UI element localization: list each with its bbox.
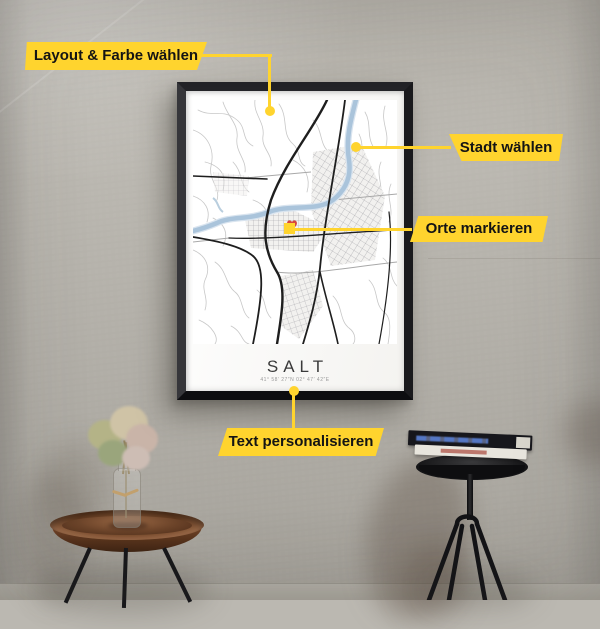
connector-stadt xyxy=(357,146,451,149)
callout-point-icon xyxy=(265,106,275,116)
poster-paper: SALT 41° 58′ 27″N 02° 47′ 42″E xyxy=(186,91,404,391)
stool-legs xyxy=(405,512,535,600)
dried-flowers xyxy=(88,406,158,478)
city-map xyxy=(193,100,397,344)
callout-text-personalisieren[interactable]: Text personalisieren xyxy=(218,428,384,456)
scene: { "callouts": { "layout": { "label": "La… xyxy=(0,0,600,600)
callout-point-icon xyxy=(351,142,361,152)
book-pages xyxy=(516,437,530,449)
wall-seam xyxy=(428,258,600,259)
book-wall-shadow xyxy=(563,400,600,465)
callout-stadt-waehlen[interactable]: Stadt wählen xyxy=(449,134,563,161)
connector-layout xyxy=(200,54,272,57)
connector-text xyxy=(292,392,295,430)
book-spine-text xyxy=(441,449,487,455)
poster-coordinates: 41° 58′ 27″N 02° 47′ 42″E xyxy=(186,377,404,383)
callout-layout-farbe[interactable]: Layout & Farbe wählen xyxy=(25,42,207,70)
connector-layout xyxy=(268,54,271,112)
poster-frame[interactable]: SALT 41° 58′ 27″N 02° 47′ 42″E xyxy=(177,82,413,400)
book-spine-text xyxy=(416,436,488,444)
flower-blob xyxy=(122,446,150,470)
callout-point-icon xyxy=(289,386,299,396)
book-stack xyxy=(407,428,536,461)
poster-title: SALT xyxy=(186,357,404,377)
callout-orte-markieren[interactable]: Orte markieren xyxy=(410,216,548,242)
callout-point-icon xyxy=(284,223,295,234)
connector-orte xyxy=(290,228,412,231)
